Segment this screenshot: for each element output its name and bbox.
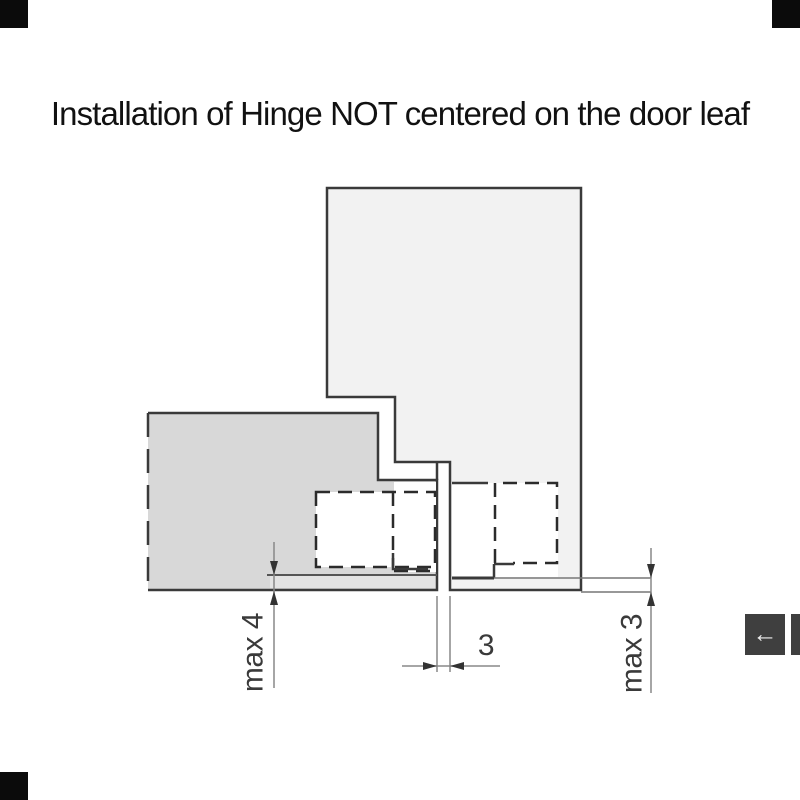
- page: Installation of Hinge NOT centered on th…: [0, 0, 800, 800]
- arrowhead-gap3-left: [450, 662, 464, 670]
- leaf-bottom-strip: [270, 576, 437, 588]
- arrowhead-max4-up: [270, 591, 278, 605]
- left-arrow-icon: ←: [753, 622, 778, 647]
- dimension-label-max4: max 4: [237, 603, 270, 703]
- next-button-partial[interactable]: [791, 614, 800, 655]
- dimension-label-max3: max 3: [616, 604, 649, 704]
- arrowhead-gap3-right: [423, 662, 437, 670]
- arrowhead-max3-down: [647, 564, 655, 578]
- hinge-diagram: [0, 0, 800, 800]
- hinge-cup-left-hole-2: [394, 482, 436, 572]
- ext-lines-gap3: [437, 596, 450, 672]
- prev-button[interactable]: ←: [745, 614, 785, 655]
- dimension-label-gap3: 3: [470, 629, 502, 662]
